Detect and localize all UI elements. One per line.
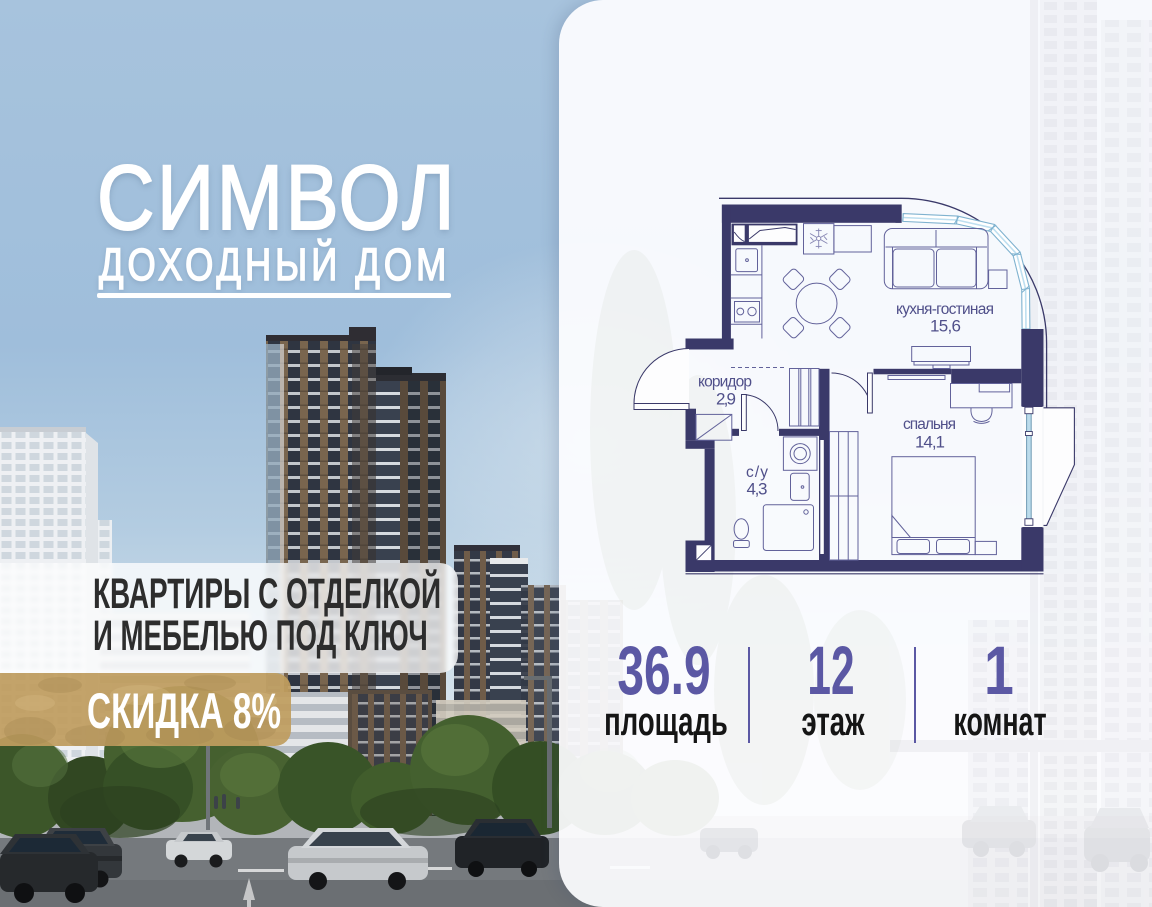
svg-text:спальня: спальня — [903, 416, 956, 433]
svg-text:4,3: 4,3 — [747, 480, 768, 499]
svg-text:кухня-гостиная: кухня-гостиная — [896, 301, 994, 318]
svg-text:15,6: 15,6 — [930, 317, 961, 336]
svg-text:с/у: с/у — [746, 464, 768, 481]
svg-text:14,1: 14,1 — [915, 433, 945, 452]
svg-text:коридор: коридор — [698, 374, 752, 391]
svg-text:2,9: 2,9 — [716, 390, 736, 409]
